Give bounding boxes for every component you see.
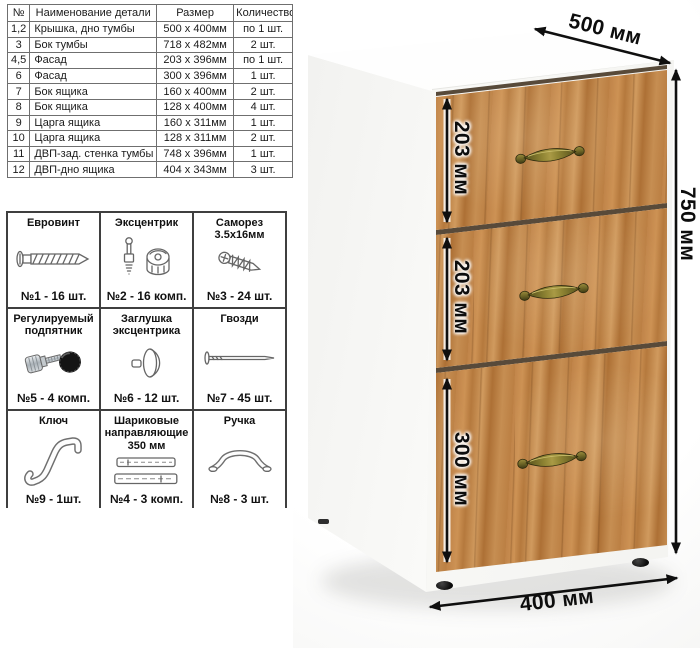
hardware-item-title: Заглушка эксцентрика <box>103 313 190 338</box>
dimension-arrows <box>293 0 700 648</box>
hardware-item-title: Эксцентрик <box>115 217 178 229</box>
hardware-item-count: №5 - 4 комп. <box>17 391 90 405</box>
table-cell: 3 <box>8 37 30 53</box>
table-row: 7Бок ящика160 х 400мм2 шт. <box>8 84 293 100</box>
cam-lock-icon <box>119 229 175 289</box>
table-cell: 1 шт. <box>234 68 293 84</box>
cam-cover-icon <box>129 338 165 391</box>
hardware-item-title: Саморез 3.5х16мм <box>196 217 283 242</box>
table-cell: 718 х 482мм <box>157 37 234 53</box>
drawer-bottom-dimension-label: 300 мм <box>448 409 474 529</box>
table-cell: 4 шт. <box>234 99 293 115</box>
hardware-cell: Ручка №8 - 3 шт. <box>194 411 285 510</box>
hardware-item-count: №2 - 16 комп. <box>107 289 187 303</box>
table-cell: 3 шт. <box>234 162 293 178</box>
parts-table-body: 1,2Крышка, дно тумбы500 х 400ммпо 1 шт.3… <box>8 22 293 178</box>
hardware-cell: Евровинт №1 - 16 шт. <box>8 213 99 307</box>
table-row: 8Бок ящика128 х 400мм4 шт. <box>8 99 293 115</box>
drawer-top-dimension-label: 203 мм <box>448 98 474 218</box>
table-cell: по 1 шт. <box>234 53 293 69</box>
hardware-grid: Евровинт №1 - 16 шт.Эксцентрик №2 - 16 к… <box>6 211 287 508</box>
hardware-cell: Шариковые направляющие 350 мм №4 - 3 ком… <box>101 411 192 510</box>
table-header-cell: Количество <box>234 5 293 22</box>
parts-table: №Наименование деталиРазмерКоличество 1,2… <box>7 4 293 178</box>
hardware-item-count: №8 - 3 шт. <box>210 492 269 506</box>
ball-slides-icon <box>114 452 180 492</box>
hardware-item-title: Шариковые направляющие 350 мм <box>103 415 190 452</box>
hardware-cell: Ключ №9 - 1шт. <box>8 411 99 510</box>
table-cell: 500 х 400мм <box>157 22 234 38</box>
table-cell: 2 шт. <box>234 84 293 100</box>
table-cell: 9 <box>8 115 30 131</box>
hardware-item-title: Евровинт <box>27 217 80 229</box>
table-cell: 8 <box>8 99 30 115</box>
table-cell: 203 х 396мм <box>157 53 234 69</box>
table-row: 4,5Фасад203 х 396ммпо 1 шт. <box>8 53 293 69</box>
table-cell: по 1 шт. <box>234 22 293 38</box>
table-cell: 2 шт. <box>234 131 293 147</box>
hardware-cell: Регулируемый подпятник №5 - 4 комп. <box>8 309 99 409</box>
hardware-cell: Эксцентрик №2 - 16 комп. <box>101 213 192 307</box>
table-cell: Бок ящика <box>30 99 157 115</box>
table-cell: Фасад <box>30 53 157 69</box>
hardware-cell: Гвозди №7 - 45 шт. <box>194 309 285 409</box>
table-row: 11ДВП-зад. стенка тумбы748 х 396мм1 шт. <box>8 146 293 162</box>
hardware-item-count: №4 - 3 комп. <box>110 492 183 506</box>
table-row: 10Царга ящика128 х 311мм2 шт. <box>8 131 293 147</box>
table-cell: 1 шт. <box>234 146 293 162</box>
table-row: 1,2Крышка, дно тумбы500 х 400ммпо 1 шт. <box>8 22 293 38</box>
table-cell: 10 <box>8 131 30 147</box>
table-cell: ДВП-дно ящика <box>30 162 157 178</box>
table-cell: 160 х 400мм <box>157 84 234 100</box>
hardware-item-count: №6 - 12 шт. <box>114 391 180 405</box>
adjustable-foot-icon <box>24 338 84 391</box>
drawer-middle-dimension-label: 203 мм <box>448 237 474 357</box>
table-cell: Бок ящика <box>30 84 157 100</box>
hardware-item-count: №9 - 1шт. <box>26 492 82 506</box>
table-header-cell: № <box>8 5 30 22</box>
hardware-item-count: №1 - 16 шт. <box>21 289 87 303</box>
table-cell: 2 шт. <box>234 37 293 53</box>
table-cell: Фасад <box>30 68 157 84</box>
table-cell: 12 <box>8 162 30 178</box>
table-cell: Бок тумбы <box>30 37 157 53</box>
hardware-cell: Саморез 3.5х16мм №3 - 24 шт. <box>194 213 285 307</box>
table-cell: Царга ящика <box>30 131 157 147</box>
table-cell: ДВП-зад. стенка тумбы <box>30 146 157 162</box>
hardware-item-title: Регулируемый подпятник <box>10 313 97 338</box>
table-cell: 4,5 <box>8 53 30 69</box>
table-row: 3Бок тумбы718 х 482мм2 шт. <box>8 37 293 53</box>
table-row: 12ДВП-дно ящика404 х 343мм3 шт. <box>8 162 293 178</box>
table-cell: Крышка, дно тумбы <box>30 22 157 38</box>
table-cell: 160 х 311мм <box>157 115 234 131</box>
table-cell: 1 шт. <box>234 115 293 131</box>
table-cell: Царга ящика <box>30 115 157 131</box>
hardware-item-title: Гвозди <box>220 313 258 325</box>
nail-icon <box>203 325 277 391</box>
table-cell: 6 <box>8 68 30 84</box>
table-row: 9Царга ящика160 х 311мм1 шт. <box>8 115 293 131</box>
parts-table-header-row: №Наименование деталиРазмерКоличество <box>8 5 293 22</box>
table-cell: 128 х 400мм <box>157 99 234 115</box>
table-header-cell: Наименование детали <box>30 5 157 22</box>
hardware-item-title: Ключ <box>39 415 68 427</box>
table-cell: 748 х 396мм <box>157 146 234 162</box>
hardware-item-title: Ручка <box>224 415 255 427</box>
hex-key-icon <box>23 427 85 492</box>
table-cell: 128 х 311мм <box>157 131 234 147</box>
self-tapping-screw-icon <box>214 242 266 289</box>
height-dimension-label: 750 мм <box>674 164 700 284</box>
hardware-item-count: №7 - 45 шт. <box>207 391 273 405</box>
table-cell: 1,2 <box>8 22 30 38</box>
table-header-cell: Размер <box>157 5 234 22</box>
table-cell: 300 х 396мм <box>157 68 234 84</box>
drawer-handle-icon <box>208 427 272 492</box>
confirmat-screw-icon <box>15 229 93 289</box>
table-row: 6Фасад300 х 396мм1 шт. <box>8 68 293 84</box>
cabinet-photo: 500 мм 750 мм 203 мм 203 мм 300 мм 400 м… <box>293 0 700 648</box>
table-cell: 7 <box>8 84 30 100</box>
table-cell: 404 х 343мм <box>157 162 234 178</box>
hardware-cell: Заглушка эксцентрика №6 - 12 шт. <box>101 309 192 409</box>
table-cell: 11 <box>8 146 30 162</box>
hardware-item-count: №3 - 24 шт. <box>207 289 273 303</box>
